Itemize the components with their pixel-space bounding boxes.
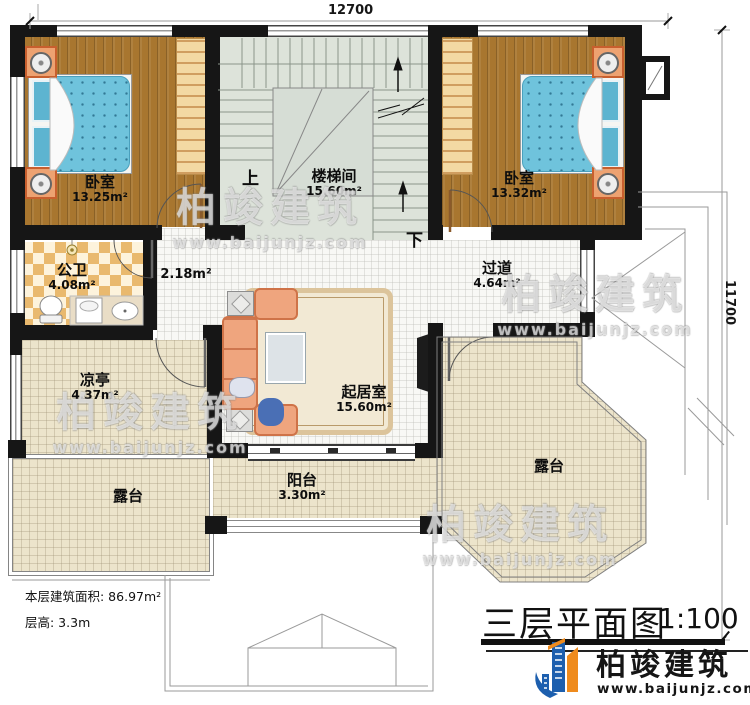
room-name: 过道 (473, 260, 520, 277)
label-pavilion: 凉亭 4.37m² (71, 372, 118, 402)
drawing-scale: 1:100 (658, 602, 739, 635)
room-area: 3.30m² (278, 489, 325, 502)
room-name: 楼梯间 (306, 168, 362, 185)
label-bedroom1: 卧室 13.25m² (72, 174, 128, 204)
label-hall-area: 2.18m² (160, 268, 211, 283)
floor-plan-canvas: 卧室 13.25m² 楼梯间 15.60m² 卧室 13.32m² 公卫 4.0… (0, 0, 750, 705)
room-area: 13.32m² (491, 187, 547, 200)
room-name: 卧室 (72, 174, 128, 191)
room-name: 卧室 (491, 170, 547, 187)
room-area: 4.37m² (71, 389, 118, 402)
room-name: 阳台 (278, 472, 325, 489)
toilet-icon (40, 296, 62, 316)
room-name: 公卫 (48, 262, 95, 279)
dimension-right: 11700 (722, 280, 737, 325)
label-living-room: 起居室 15.60m² (336, 384, 392, 414)
brand-name: 柏竣建筑 (596, 640, 732, 684)
room-name: 凉亭 (71, 372, 118, 389)
room-area: 4.64m² (473, 277, 520, 290)
room-name: 露台 (534, 458, 564, 475)
label-terrace-right: 露台 (534, 458, 564, 475)
room-area: 13.25m² (72, 191, 128, 204)
label-balcony: 阳台 3.30m² (278, 472, 325, 502)
label-stairwell: 楼梯间 15.60m² (306, 168, 362, 198)
bay-window-mark (648, 66, 662, 90)
room-area: 15.60m² (336, 401, 392, 414)
label-terrace-left: 露台 (113, 488, 143, 505)
floor-height-info: 层高: 3.3m (25, 612, 90, 631)
roof-lines-right (592, 192, 734, 525)
label-corridor: 过道 4.64m² (473, 260, 520, 290)
door-arcs (114, 184, 493, 387)
room-area: 15.60m² (306, 185, 362, 198)
stairs-direction-arrows (378, 58, 424, 212)
floor-area-info: 本层建筑面积: 86.97m² (25, 586, 161, 605)
brand-logo-icon (528, 636, 592, 702)
room-name: 露台 (113, 488, 143, 505)
label-bedroom2: 卧室 13.32m² (491, 170, 547, 200)
label-stairs-up: 上 (242, 164, 259, 189)
room-name: 起居室 (336, 384, 392, 401)
label-bathroom: 公卫 4.08m² (48, 262, 95, 292)
label-stairs-down: 下 (406, 226, 423, 251)
room-area: 2.18m² (160, 268, 211, 283)
dimension-top: 12700 (328, 3, 373, 18)
room-area: 4.08m² (48, 279, 95, 292)
brand-url: www.baijunjz.com (597, 681, 750, 697)
